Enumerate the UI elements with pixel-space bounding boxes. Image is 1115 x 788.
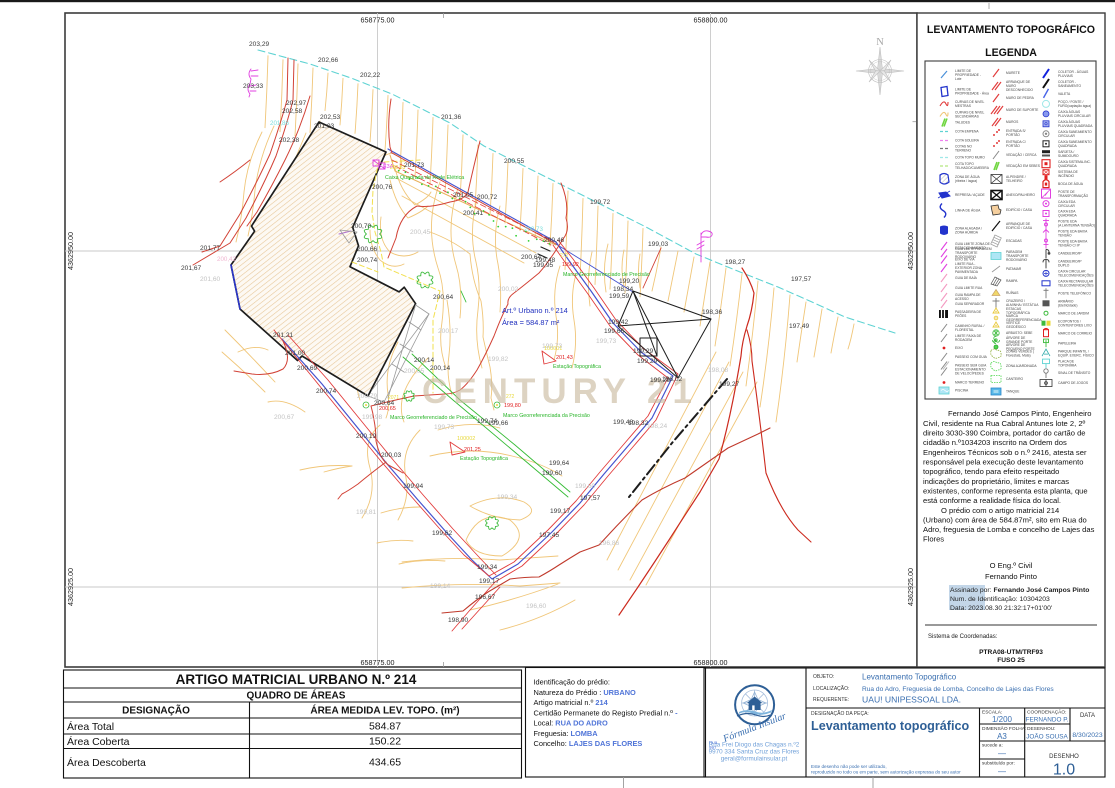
svg-text:ÁREA MEDIDA LEV. TOPO. (m²): ÁREA MEDIDA LEV. TOPO. (m²) [310,704,459,717]
svg-text:TOPONÍMIA: TOPONÍMIA [1058,363,1077,367]
svg-text:ESCADAS: ESCADAS [1006,239,1023,243]
svg-text:658800.00: 658800.00 [694,658,728,667]
svg-text:TELECOMUNICAÇÕES: TELECOMUNICAÇÕES [1058,283,1094,288]
svg-text:PATAMAR: PATAMAR [1006,267,1022,271]
svg-text:ARBUSTO: SEBE: ARBUSTO: SEBE [1006,331,1033,335]
svg-text:substituído por:: substituído por: [982,761,1015,767]
svg-text:197,57: 197,57 [580,495,601,502]
svg-text:DIMENSÃO FOLHA:: DIMENSÃO FOLHA: [982,725,1026,732]
svg-text:200,66: 200,66 [357,246,378,253]
svg-text:199,73: 199,73 [542,343,563,350]
svg-text:199,29: 199,29 [637,358,658,365]
svg-text:Local: RUA DO ADRO: Local: RUA DO ADRO [534,719,608,728]
svg-text:199,20: 199,20 [619,278,640,285]
svg-text:DE VELOCÍPEDES: DE VELOCÍPEDES [955,372,985,376]
svg-text:198,34: 198,34 [613,286,634,293]
svg-text:Art.º Urbano n.º 214: Art.º Urbano n.º 214 [502,306,568,315]
svg-text:PLUVIAIS QUADRADA: PLUVIAIS QUADRADA [1058,124,1093,128]
svg-text:GUIA DE BAÍA: GUIA DE BAÍA [955,276,978,280]
svg-text:TERRENO: TERRENO [955,149,972,153]
svg-text:200,74: 200,74 [357,257,378,264]
svg-text:198,90: 198,90 [448,617,469,624]
svg-text:DESCONHECIDO: DESCONHECIDO [1006,88,1033,92]
svg-text:FLORESTAL: FLORESTAL [955,328,974,332]
svg-text:SINAL DE TRÂNSITO: SINAL DE TRÂNSITO [1058,371,1091,375]
svg-text:PORTÃO: PORTÃO [1006,132,1020,137]
svg-text:196,02: 196,02 [662,376,683,383]
svg-text:EDIFÍCIO / CASA: EDIFÍCIO / CASA [1006,226,1033,230]
svg-text:4362925.00: 4362925.00 [66,568,75,606]
svg-text:VEDAÇÃO / CERCA: VEDAÇÃO / CERCA [1006,152,1037,157]
svg-text:202,66: 202,66 [318,57,339,64]
svg-text:Civil, residente na Rua Cabral: Civil, residente na Rua Cabral Antunes l… [923,419,1086,428]
svg-text:CAMPO DE JOGOS: CAMPO DE JOGOS [1058,381,1089,385]
svg-text:QUADRADA: QUADRADA [1058,144,1077,148]
svg-text:DESENHOU:: DESENHOU: [1027,726,1056,732]
svg-text:Data: 2023.08.30 21:32:17+01'0: Data: 2023.08.30 21:32:17+01'00' [950,605,1052,612]
svg-text:LEGENDA: LEGENDA [985,47,1037,59]
svg-text:ZONA HÚMIDA: ZONA HÚMIDA [955,231,979,235]
svg-text:Lote: Lote [955,77,962,81]
svg-text:199,17: 199,17 [550,508,571,515]
svg-text:POSTE TELEFÓNICO: POSTE TELEFÓNICO [1058,291,1092,296]
svg-text:GUIA SEPARADOR: GUIA SEPARADOR [955,302,985,306]
svg-text:PLUVIAIS CIRCULAR: PLUVIAIS CIRCULAR [1058,114,1091,118]
svg-text:201,05: 201,05 [453,192,474,199]
svg-text:199,94: 199,94 [403,483,424,490]
svg-text:200,46: 200,46 [544,237,565,244]
svg-text:197,57: 197,57 [791,276,812,283]
svg-text:9970 334 Santa Cruz das Flores: 9970 334 Santa Cruz das Flores [709,749,800,756]
svg-text:199,29: 199,29 [633,348,654,355]
svg-text:Identificação do prédio:: Identificação do prédio: [534,678,610,687]
svg-text:COTA TOPO MURO: COTA TOPO MURO [955,156,985,160]
svg-text:O Eng.º Civil: O Eng.º Civil [990,561,1033,570]
svg-text:RUÍNAS: RUÍNAS [1006,291,1019,295]
svg-text:TALUDES: TALUDES [955,121,971,125]
svg-text:CIRCULAR: CIRCULAR [1058,204,1075,208]
svg-text:202,58: 202,58 [282,108,303,115]
svg-text:A3: A3 [997,732,1007,741]
svg-text:200,03: 200,03 [381,452,402,459]
svg-text:CIRCULAR: CIRCULAR [1058,134,1075,138]
svg-text:199,27: 199,27 [719,381,740,388]
svg-text:199,72: 199,72 [590,199,611,206]
svg-text:GEODÉSICO: GEODÉSICO [1006,324,1026,329]
svg-text:PORTÃO: PORTÃO [1006,143,1020,148]
svg-text:(ribeira / lagoa): (ribeira / lagoa) [955,179,977,183]
svg-text:200,19: 200,19 [356,433,377,440]
svg-text:584.87: 584.87 [369,721,401,733]
svg-text:geral@formulainsular.pt: geral@formulainsular.pt [721,756,788,763]
svg-text:199,62: 199,62 [432,530,453,537]
svg-text:658800.00: 658800.00 [694,16,728,25]
svg-text:PEÕES: PEÕES [955,313,967,318]
svg-text:FUSO 25: FUSO 25 [997,657,1025,664]
svg-text:RAMPA: RAMPA [1006,279,1018,283]
svg-text:201,03: 201,03 [314,123,335,130]
svg-text:TANQUE: TANQUE [1006,390,1020,394]
svg-text:Levantamento topográfico: Levantamento topográfico [811,719,969,733]
svg-text:PAVIMENTADA: PAVIMENTADA [955,270,979,274]
svg-text:REQUERENTE:: REQUERENTE: [813,697,849,703]
svg-text:199,73: 199,73 [596,338,617,345]
svg-text:658775.00: 658775.00 [361,16,395,25]
svg-text:200,64: 200,64 [374,400,395,407]
svg-text:200,14: 200,14 [414,357,435,364]
svg-text:BOCA DE ÁGUA: BOCA DE ÁGUA [1058,182,1084,186]
svg-text:200,55: 200,55 [504,158,525,165]
svg-text:MARCO DE JARDIM: MARCO DE JARDIM [1058,311,1089,315]
svg-text:198,27: 198,27 [725,259,746,266]
svg-text:DESENHO: DESENHO [1049,754,1079,760]
svg-text:QUADRO DE ÁREAS: QUADRO DE ÁREAS [247,689,346,702]
svg-text:EIXO: EIXO [955,346,963,350]
svg-text:Área = 584.87 m²: Área = 584.87 m² [502,318,560,327]
svg-text:O prédio com o artigo matricia: O prédio com o artigo matricial 214 [941,506,1059,515]
svg-text:Num. de Identificação: 1030420: Num. de Identificação: 10304203 [950,596,1050,603]
svg-text:198,32: 198,32 [628,420,649,427]
svg-text:LINHA DE ÁGUA: LINHA DE ÁGUA [955,209,981,213]
svg-text:199,17: 199,17 [479,578,500,585]
svg-text:DUPLO: DUPLO [1058,264,1070,268]
svg-text:197,45: 197,45 [539,532,560,539]
svg-text:Natureza do Prédio : URBANO: Natureza do Prédio : URBANO [534,688,637,697]
svg-text:RODOVIÁRIO: RODOVIÁRIO [1006,258,1028,262]
svg-text:150.22: 150.22 [369,736,401,748]
svg-text:199,92: 199,92 [562,262,579,268]
svg-text:201,25: 201,25 [464,447,481,453]
svg-text:cidadão n.º1034203 inscrito na: cidadão n.º1034203 inscrito na Ordem dos [923,438,1067,447]
svg-text:197,49: 197,49 [789,323,810,330]
svg-text:QUADRADA: QUADRADA [1058,164,1077,168]
svg-text:existentes, conforme represent: existentes, conforme representa esta pla… [923,487,1088,496]
svg-text:200,79: 200,79 [357,393,378,400]
svg-text:JOÃO SOUSA: JOÃO SOUSA [1026,732,1068,741]
svg-text:201,77: 201,77 [200,245,221,252]
svg-text:434.65: 434.65 [369,757,401,769]
svg-text:4362950.00: 4362950.00 [66,232,75,270]
svg-text:DATA: DATA [1080,713,1095,719]
svg-text:202,53: 202,53 [320,114,341,121]
svg-text:199,81: 199,81 [356,509,377,516]
svg-text:199,64: 199,64 [549,460,570,467]
svg-text:200,76: 200,76 [372,184,393,191]
svg-text:199,34: 199,34 [497,494,518,501]
svg-text:Sistema de Coordenadas:: Sistema de Coordenadas: [928,634,998,640]
svg-text:200,73: 200,73 [524,226,543,233]
svg-text:CONTENTORES LIXO: CONTENTORES LIXO [1058,323,1092,327]
svg-text:CANTEIRO: CANTEIRO [1006,377,1023,381]
svg-text:200,17: 200,17 [438,328,459,335]
svg-text:GUIA LIMITE RUA: GUIA LIMITE RUA [955,286,983,290]
svg-text:TRANSFORMAÇÃO: TRANSFORMAÇÃO [1058,193,1089,198]
svg-text:PAPELEIRA: PAPELEIRA [1058,341,1077,345]
svg-text:EIXO DE VIA: EIXO DE VIA [955,258,975,262]
svg-text:PASSEIO COM GUIA: PASSEIO COM GUIA [955,355,988,359]
svg-text:MARCO DE CORREIO: MARCO DE CORREIO [1058,331,1093,335]
svg-text:COTA EMPENA: COTA EMPENA [955,130,979,134]
svg-text:200,67: 200,67 [274,414,295,421]
svg-text:1/200: 1/200 [992,715,1013,724]
svg-text:MUROS: MUROS [1006,120,1019,124]
svg-text:201,00: 201,00 [285,350,306,357]
svg-text:Adro, freguesia de Lomba e con: Adro, freguesia de Lomba e concelho de L… [923,525,1095,534]
svg-text:198,08: 198,08 [708,367,729,374]
svg-text:201,86: 201,86 [270,120,289,127]
svg-text:4362925.00: 4362925.00 [906,568,915,606]
svg-text:INCÊNDIO: INCÊNDIO [1058,173,1075,178]
svg-text:MURO DE SUPORTE: MURO DE SUPORTE [1006,108,1039,112]
svg-text:200,41: 200,41 [463,210,484,217]
svg-text:202,97: 202,97 [286,100,307,107]
svg-text:Este desenho não pode ser util: Este desenho não pode ser utilizado, [811,764,887,769]
svg-text:ZONA AJARDINADA: ZONA AJARDINADA [1006,364,1037,368]
svg-text:272: 272 [560,253,569,259]
svg-text:199,60: 199,60 [542,470,563,477]
svg-text:Florestais, Mata): Florestais, Mata) [1006,354,1031,358]
svg-text:ACESSO: ACESSO [955,297,969,301]
svg-text:201,60: 201,60 [200,276,221,283]
svg-text:203,33: 203,33 [243,83,264,90]
svg-text:UAU! UNIPESSOAL LDA.: UAU! UNIPESSOAL LDA. [862,695,961,705]
svg-text:VALETA: VALETA [1058,92,1071,96]
svg-text:Certidão Permanete do Registo: Certidão Permanete do Registo Predial n.… [534,709,679,718]
svg-text:EDIFÍCIO / CASA: EDIFÍCIO / CASA [1006,208,1033,212]
svg-text:LEVANTAMENTO TOPOGRÁFICO: LEVANTAMENTO TOPOGRÁFICO [927,23,1095,36]
svg-text:200,74: 200,74 [316,388,337,395]
svg-text:COTA SOLEIRA: COTA SOLEIRA [955,139,980,143]
svg-text:196,60: 196,60 [526,603,547,610]
svg-text:(Eletricidade): (Eletricidade) [1058,304,1077,308]
svg-text:—: — [998,749,1006,758]
svg-text:100002: 100002 [457,436,475,442]
svg-text:Área Coberta: Área Coberta [67,735,130,748]
svg-text:responsável pela execução dest: responsável pela execução deste levantam… [923,458,1083,467]
svg-text:PISCINA: PISCINA [955,389,969,393]
svg-text:Estação Topográfica: Estação Topográfica [553,364,601,370]
svg-text:TELECOMUNICAÇÕES: TELECOMUNICAÇÕES [1058,273,1094,278]
svg-text:199,42: 199,42 [608,319,629,326]
svg-text:RODAGEM: RODAGEM [955,338,972,342]
svg-text:200,72: 200,72 [477,194,498,201]
svg-text:200,70: 200,70 [351,223,372,230]
svg-text:Marco Georreferenciado de Prec: Marco Georreferenciado de Precisão [390,415,477,421]
svg-text:TENSÃO: TENSÃO [1058,233,1072,238]
svg-text:Caixa Quadrada de Rede Elétric: Caixa Quadrada de Rede Elétrica [385,175,464,181]
svg-text:199,03: 199,03 [648,241,669,248]
svg-text:OBJETO:: OBJETO: [813,674,834,680]
svg-text:196,67: 196,67 [475,594,496,601]
svg-text:200,69: 200,69 [297,365,318,372]
svg-text:Engenheiros Técnicos sob o n.º: Engenheiros Técnicos sob o n.º 2416, ate… [923,448,1087,457]
svg-text:203,29: 203,29 [249,41,270,48]
svg-text:200,05: 200,05 [404,368,425,375]
svg-text:VEDAÇÃO EM SEBES: VEDAÇÃO EM SEBES [1006,163,1041,168]
svg-text:Concelho: LAJES DAS FLORES: Concelho: LAJES DAS FLORES [534,739,643,748]
svg-text:202,38: 202,38 [279,137,300,144]
svg-text:199,82: 199,82 [488,356,509,363]
svg-text:DESIGNAÇÃO DA PEÇA:: DESIGNAÇÃO DA PEÇA: [811,710,869,717]
svg-text:MARCO TERRENO: MARCO TERRENO [955,381,985,385]
svg-text:MURETE: MURETE [1006,71,1021,75]
svg-text:658775.00: 658775.00 [361,658,395,667]
svg-text:Levantamento Topográfico: Levantamento Topográfico [862,673,957,682]
svg-text:SUMIDOURO: SUMIDOURO [1058,154,1079,158]
svg-text:198,24: 198,24 [647,423,668,430]
svg-text:SECUNDÁRIAS: SECUNDÁRIAS [955,115,980,119]
svg-text:199,48: 199,48 [535,257,556,264]
svg-text:LOCALIZAÇÃO:: LOCALIZAÇÃO: [813,685,849,692]
svg-text:201,36: 201,36 [441,114,462,121]
svg-text:reproduzido no todo ou em part: reproduzido no todo ou em parte, sem aut… [811,770,961,775]
svg-text:DESIGNAÇÃO: DESIGNAÇÃO [122,704,190,717]
svg-text:201,21: 201,21 [273,332,294,339]
svg-text:Rua do Adro, Freguesia de Lomb: Rua do Adro, Freguesia de Lomba, Concelh… [862,686,1054,693]
svg-text:MESTRAS: MESTRAS [955,104,972,108]
svg-text:FERNANDO P.: FERNANDO P. [1026,717,1069,724]
svg-text:201,73: 201,73 [404,162,425,169]
svg-text:201,67: 201,67 [181,265,202,272]
svg-text:TELHADO/CUMEEIRA: TELHADO/CUMEEIRA [955,166,990,170]
svg-text:202,22: 202,22 [360,72,381,79]
svg-text:CANDEEIRO/IP: CANDEEIRO/IP [1058,252,1082,256]
svg-text:Área Descoberta: Área Descoberta [67,756,146,769]
svg-text:Freguesia: LOMBA: Freguesia: LOMBA [534,729,599,738]
svg-text:indicações do proprietário, li: indicações do proprietário, limites e ma… [923,477,1069,486]
svg-text:Flores: Flores [923,535,944,544]
svg-text:PROPRIEDADE - Área: PROPRIEDADE - Área [955,92,989,96]
svg-text:COORDENAÇÃO:: COORDENAÇÃO: [1027,709,1066,716]
svg-text:199,98: 199,98 [362,414,383,421]
svg-text:ARTIGO MATRICIAL URBANO N.º 21: ARTIGO MATRICIAL URBANO N.º 214 [176,672,417,687]
svg-text:MURO DE PEDRA: MURO DE PEDRA [1006,96,1035,100]
svg-text:Fernando José Campos Pinto, En: Fernando José Campos Pinto, Engenheiro [948,409,1092,418]
svg-text:199,66: 199,66 [604,328,625,335]
svg-text:TENSÃO C/ IP: TENSÃO C/ IP [1058,243,1081,248]
svg-text:199,66: 199,66 [488,420,509,427]
svg-text:PLUVIAIS: PLUVIAIS [1058,74,1074,78]
svg-text:FURO(captação água): FURO(captação água) [1058,104,1091,108]
svg-text:—: — [998,767,1006,776]
svg-text:Rua Frei Diogo das Chagas n.º2: Rua Frei Diogo das Chagas n.º2 [709,742,800,749]
svg-text:ANEXO/PALHEIRO: ANEXO/PALHEIRO [1006,193,1035,197]
svg-text:(A LANTERNA TENSÃO): (A LANTERNA TENSÃO) [1058,223,1095,228]
svg-text:EQUIP. EXERC. FÍSICO: EQUIP. EXERC. FÍSICO [1058,353,1094,357]
svg-text:N: N [876,37,884,48]
svg-text:196,86: 196,86 [599,540,620,547]
svg-text:TELHEIRO: TELHEIRO [1006,179,1023,183]
svg-text:REPRESA / AÇUDE: REPRESA / AÇUDE [955,193,985,197]
svg-text:199,14: 199,14 [430,583,451,590]
svg-text:198,36: 198,36 [702,309,723,316]
svg-text:199,73: 199,73 [434,424,455,431]
svg-text:(Urbano) com área de 584.87m²: (Urbano) com área de 584.87m², sito em R… [923,516,1087,525]
svg-text:Estação Topográfica: Estação Topográfica [460,456,508,462]
svg-text:201,43: 201,43 [556,355,573,361]
svg-text:4362950.00: 4362950.00 [906,232,915,270]
svg-text:200,45: 200,45 [410,229,431,236]
svg-text:200,02: 200,02 [498,286,519,293]
svg-text:Área Total: Área Total [67,720,114,733]
svg-text:8/30/2023: 8/30/2023 [1072,732,1102,739]
svg-text:PTRA08-UTM/TRF93: PTRA08-UTM/TRF93 [979,649,1043,656]
svg-text:topográfico, tendo para efeito: topográfico, tendo para efeito respeitad… [923,467,1059,476]
svg-text:está conforme a realidade físi: está conforme a realidade física do loca… [923,496,1061,505]
svg-text:1.0: 1.0 [1053,762,1075,779]
svg-text:200,14: 200,14 [430,365,451,372]
svg-text:200,42: 200,42 [217,256,236,263]
svg-text:199,59: 199,59 [609,293,630,300]
svg-text:sucede a:: sucede a: [982,743,1003,749]
svg-text:SANEAMENTO: SANEAMENTO [1058,84,1081,88]
svg-text:Marco Georreferenciada da Prec: Marco Georreferenciada da Precisão [503,413,590,419]
svg-text:Assinado por: Fernando José Ca: Assinado por: Fernando José Campos Pinto [950,587,1089,594]
svg-text:199,60: 199,60 [575,483,596,490]
svg-text:direito 3030-390 Coimbra, port: direito 3030-390 Coimbra, portador do ca… [923,429,1086,438]
svg-text:199,34: 199,34 [477,564,498,571]
svg-text:200,64: 200,64 [433,294,454,301]
svg-text:Artigo matricial n.º 214: Artigo matricial n.º 214 [534,698,609,707]
svg-text:Fernando Pinto: Fernando Pinto [985,572,1037,581]
svg-text:QUADRADA: QUADRADA [1058,214,1077,218]
